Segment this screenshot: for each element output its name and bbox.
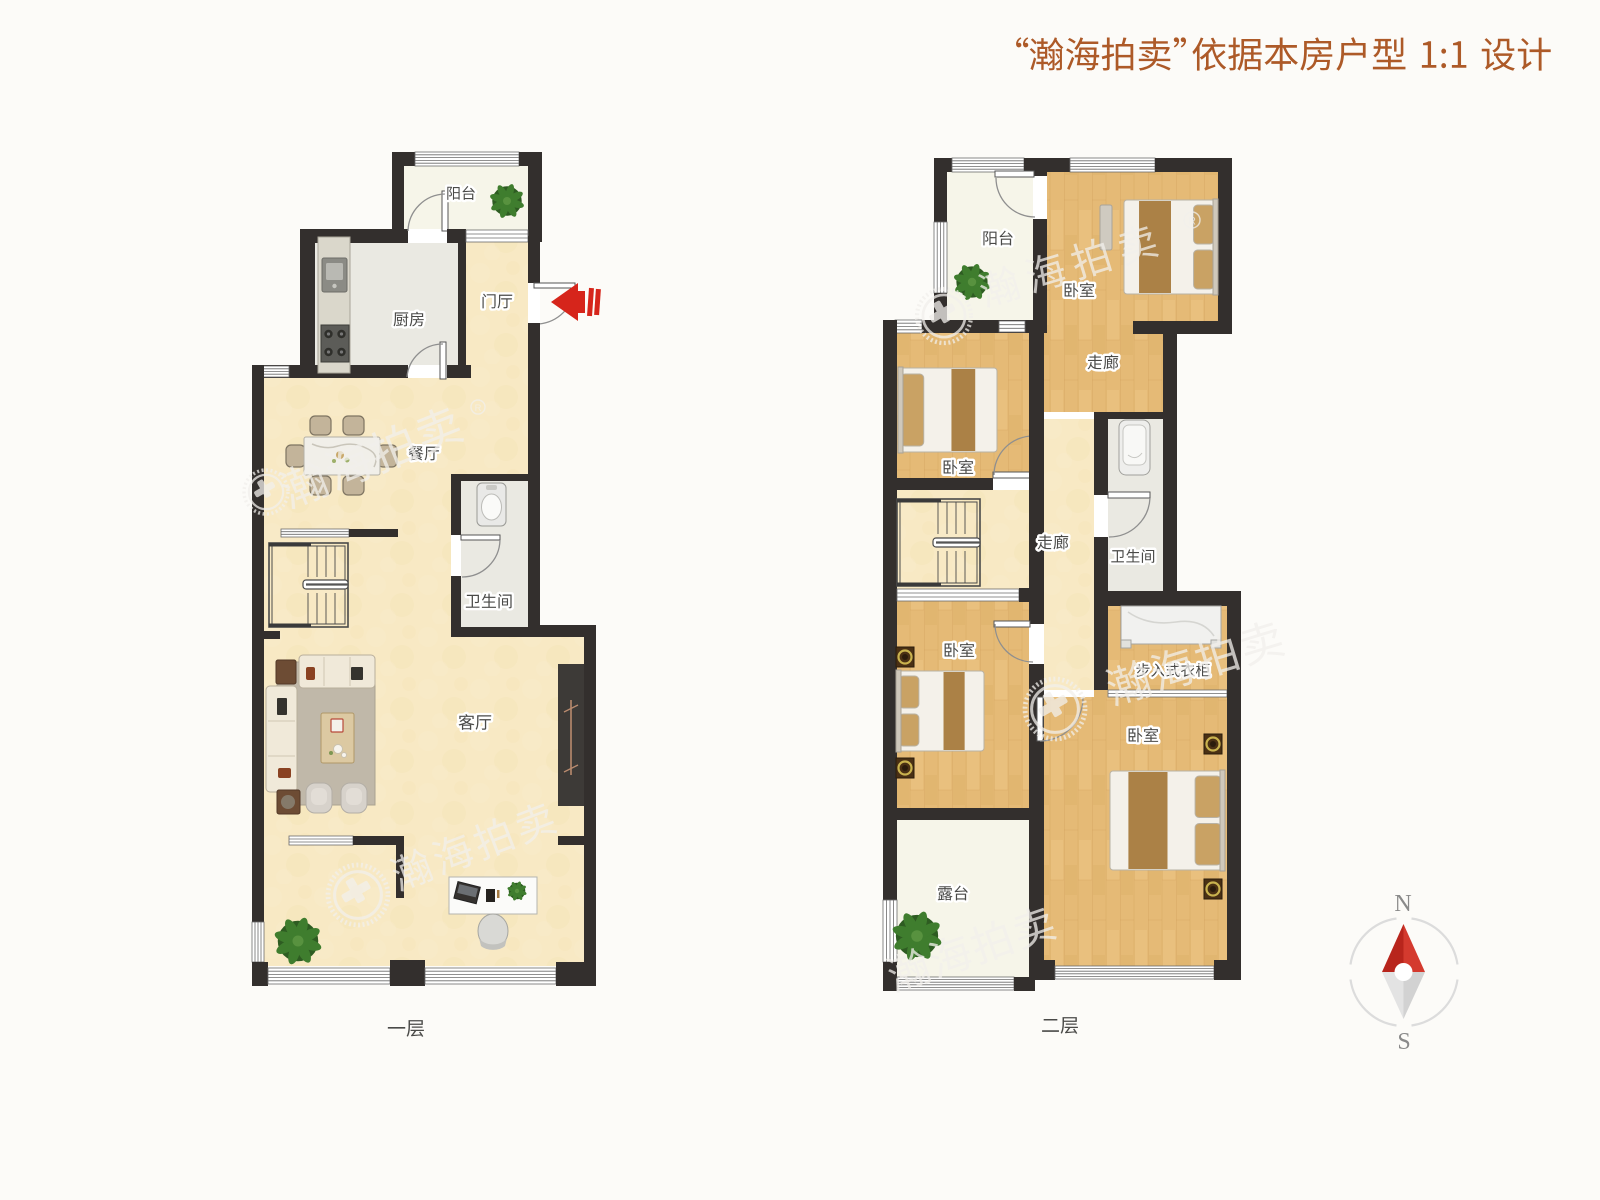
svg-text:S: S — [1397, 1029, 1410, 1055]
svg-text:N: N — [1394, 891, 1411, 917]
svg-text:R: R — [1188, 216, 1196, 228]
svg-text:R: R — [475, 403, 482, 414]
